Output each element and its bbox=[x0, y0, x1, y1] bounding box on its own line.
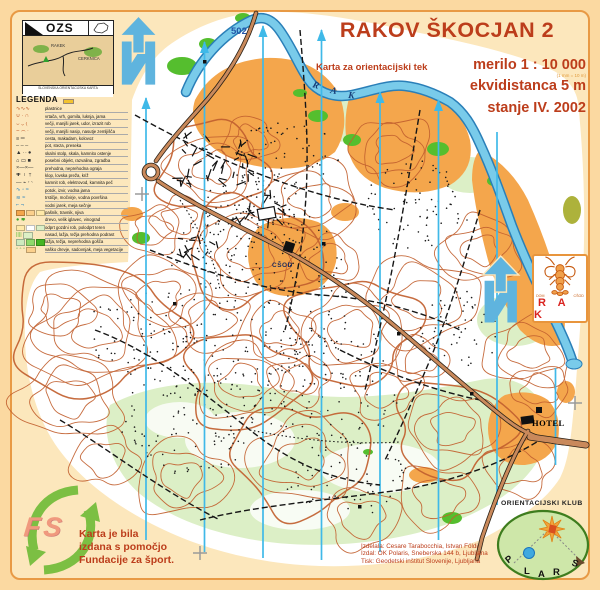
town-label: CERKNICA bbox=[78, 56, 100, 61]
legend-symbol: ∿∿∿ bbox=[16, 107, 45, 113]
legend-row: odprt gozdni rob, polodprt teren bbox=[16, 224, 128, 231]
legend-label: večji, manjši nasip, nasutje zemljišča bbox=[45, 129, 128, 136]
credits: Izdelala: Cesare Tarabocchia, Istvan Föl… bbox=[361, 543, 488, 565]
fs-logo: FS bbox=[22, 512, 66, 543]
legend-label: klop, lovska preža, križ bbox=[45, 173, 128, 180]
legend-row: ≋ ≈trstičje, močvirje, vodna površina bbox=[16, 195, 128, 202]
ozs-footer-text: SLOVENSKA ORIENTACIJSKA KARTA bbox=[23, 86, 113, 91]
hotel-label: HOTEL bbox=[532, 418, 565, 428]
map-subtitle: Karta za orientacijski tek bbox=[316, 62, 427, 73]
legend-row: ✚ ⊤ †klop, lovska preža, križ bbox=[16, 173, 128, 180]
credit-line: Izdal: OK Polaris, Sneberska 144 b, Ljub… bbox=[361, 550, 488, 557]
legend-symbol: – – – bbox=[16, 144, 45, 150]
title-block: RAKOV ŠKOCJAN 2 Karta za orientacijski t… bbox=[306, 16, 588, 124]
slovenia-outline-icon bbox=[88, 21, 113, 35]
scale-block: merilo 1 : 10 000 (1 mm = 10 m) ekvidist… bbox=[470, 58, 586, 116]
legend-row: – – –pot, steza, preseka bbox=[16, 143, 128, 150]
north-arrow-icon bbox=[120, 16, 157, 85]
legend-label: vrtača, vrh, gomila, luknja, jama bbox=[45, 114, 128, 121]
legend-row: pašnik, travnik, njiva bbox=[16, 209, 128, 216]
legend-label: vaško drevje, sadovnjak, meja vegetacije bbox=[45, 247, 128, 254]
legend-label: pašnik, travnik, njiva bbox=[45, 210, 128, 217]
legend-row: lažja, težja, neprehodna gošča bbox=[16, 239, 128, 246]
ozs-box: OZS RAKEK CERKNICA SLOVENSKA ORIENTACIJS… bbox=[22, 20, 114, 94]
legend-row: ◦ ◦ ◦vaško drevje, sadovnjak, meja veget… bbox=[16, 246, 128, 253]
legend-rows: ∿∿∿plastnice∪ · ∩vrtača, vrh, gomila, lu… bbox=[16, 106, 128, 254]
legend-symbol: ≡ ═ bbox=[16, 137, 45, 143]
legend-label: cesta, makadam, kolovoz bbox=[45, 136, 128, 143]
legend-row: ⌣ ⌄ ⟨večji, manjši jarek, udor, izrazit … bbox=[16, 121, 128, 128]
polaris-letter: L bbox=[524, 566, 530, 577]
legend-label: prehodna, neprehodna ograja bbox=[45, 166, 128, 173]
equidistance-text: ekvidistanca 5 m bbox=[470, 79, 586, 94]
ozs-triangle-icon bbox=[25, 22, 43, 35]
school-label: CŠOD bbox=[272, 260, 293, 269]
polaris-letter: A bbox=[538, 569, 545, 580]
legend-row: ⌐ ¬vodni jarek, meja sečnje bbox=[16, 202, 128, 209]
polaris-compass-logo: P L A R S bbox=[496, 508, 590, 582]
rak-box: DOM CŠOD R A K bbox=[532, 254, 588, 323]
legend-label: odprt gozdni rob, polodprt teren bbox=[45, 225, 128, 232]
legend-label: vodni jarek, meja sečnje bbox=[45, 203, 128, 210]
legend-symbol: ∿ ◦ ≈ bbox=[16, 188, 45, 194]
legend-row: ∿ ◦ ≈potok, izvir, vodna jama bbox=[16, 187, 128, 194]
legend-label: posebni objekt, razvalina, zgradba bbox=[45, 158, 128, 165]
legend-symbol: ◦ ◦ ◦ bbox=[16, 247, 45, 254]
letter-o-dot bbox=[524, 548, 535, 559]
legend: LEGENDA ∿∿∿plastnice∪ · ∩vrtača, vrh, go… bbox=[16, 95, 128, 254]
status-text: stanje IV. 2002 bbox=[470, 101, 586, 116]
legend-symbol: ×—×— bbox=[16, 166, 45, 172]
legend-symbol: ✚ ⊤ † bbox=[16, 173, 45, 179]
legend-label: trstičje, močvirje, vodna površina bbox=[45, 195, 128, 202]
crayfish-icon bbox=[539, 256, 581, 296]
legend-label: kamnit rob, elektrovod, kamnita peč bbox=[45, 180, 128, 187]
legend-row: ≡ ═cesta, makadam, kolovoz bbox=[16, 136, 128, 143]
legend-row: ⌢ ⌒ ·večji, manjši nasip, nasutje zemlji… bbox=[16, 128, 128, 135]
legend-label: potok, izvir, vodna jama bbox=[45, 188, 128, 195]
funding-line: izdana s pomočjo bbox=[79, 541, 174, 554]
polaris-letter: R bbox=[553, 567, 560, 578]
funding-line: Karta je bila bbox=[79, 528, 174, 541]
legend-symbol: ⌐ ¬ bbox=[16, 203, 45, 209]
legend-symbol: ● ✱ bbox=[16, 218, 45, 224]
legend-row: ∪ · ∩vrtača, vrh, gomila, luknja, jama bbox=[16, 113, 128, 120]
legend-row: ⌂ ▭ ■posebni objekt, razvalina, zgradba bbox=[16, 158, 128, 165]
road-number-label: 502 bbox=[231, 26, 247, 37]
credit-line: Tisk: Geodetski inštitut Slovenije, Ljub… bbox=[361, 558, 488, 565]
legend-symbol bbox=[16, 239, 45, 246]
legend-symbol bbox=[16, 210, 45, 217]
locator-map: RAKEK CERKNICA bbox=[23, 36, 113, 85]
legend-label: večji, manjši jarek, udor, izrazit rob bbox=[45, 121, 128, 128]
legend-symbol: |||| bbox=[16, 232, 45, 239]
legend-symbol: ∪ · ∩ bbox=[16, 114, 45, 120]
funding-note: Karta je bila izdana s pomočjo Fundacije… bbox=[79, 528, 174, 567]
legend-row: ×—×—prehodna, neprehodna ograja bbox=[16, 165, 128, 172]
legend-symbol: ▲ ∴ ● bbox=[16, 151, 45, 157]
legend-symbol: ⌣ ⌄ ⟨ bbox=[16, 122, 45, 128]
legend-label: lažja, težja, neprehodna gošča bbox=[45, 239, 128, 246]
legend-symbol: ≋ ≈ bbox=[16, 196, 45, 202]
legend-label: nasad, lažja, težja prehodna podrast bbox=[45, 232, 128, 239]
ozs-header: OZS bbox=[23, 21, 113, 36]
scale-text: merilo 1 : 10 000 bbox=[470, 58, 586, 73]
club-label: ORIENTACIJSKI KLUB bbox=[501, 500, 583, 507]
legend-label: plastnice bbox=[45, 106, 128, 113]
legend-row: ▲ ∴ ●skalni stolp, skala, kamnito ostenj… bbox=[16, 150, 128, 157]
legend-symbol: — ⌁ ◠ bbox=[16, 181, 45, 187]
funding-line: Fundacije za šport. bbox=[79, 554, 174, 567]
credit-line: Izdelala: Cesare Tarabocchia, Istvan Föl… bbox=[361, 543, 488, 550]
legend-row: — ⌁ ◠kamnit rob, elektrovod, kamnita peč bbox=[16, 180, 128, 187]
legend-row: ∿∿∿plastnice bbox=[16, 106, 128, 113]
legend-row: ||||nasad, lažja, težja prehodna podrast bbox=[16, 232, 128, 239]
legend-label: skalni stolp, skala, kamnito ostenje bbox=[45, 151, 128, 158]
legend-symbol bbox=[16, 225, 45, 232]
map-title: RAKOV ŠKOCJAN 2 bbox=[306, 18, 588, 43]
legend-label: drevo, velik iglavec, vinograd bbox=[45, 217, 128, 224]
legend-symbol: ⌢ ⌒ · bbox=[16, 129, 45, 135]
ozs-acronym: OZS bbox=[46, 21, 88, 35]
locator-marker-icon bbox=[43, 56, 49, 62]
legend-label: pot, steza, preseka bbox=[45, 143, 128, 150]
legend-row: ● ✱drevo, velik iglavec, vinograd bbox=[16, 217, 128, 224]
map-sheet: 502 R A K CŠOD HOTEL OZS bbox=[0, 0, 600, 590]
town-label: RAKEK bbox=[51, 43, 65, 48]
legend-title: LEGENDA bbox=[16, 95, 128, 104]
rak-name: R A K bbox=[534, 297, 586, 321]
legend-symbol: ⌂ ▭ ■ bbox=[16, 159, 45, 165]
